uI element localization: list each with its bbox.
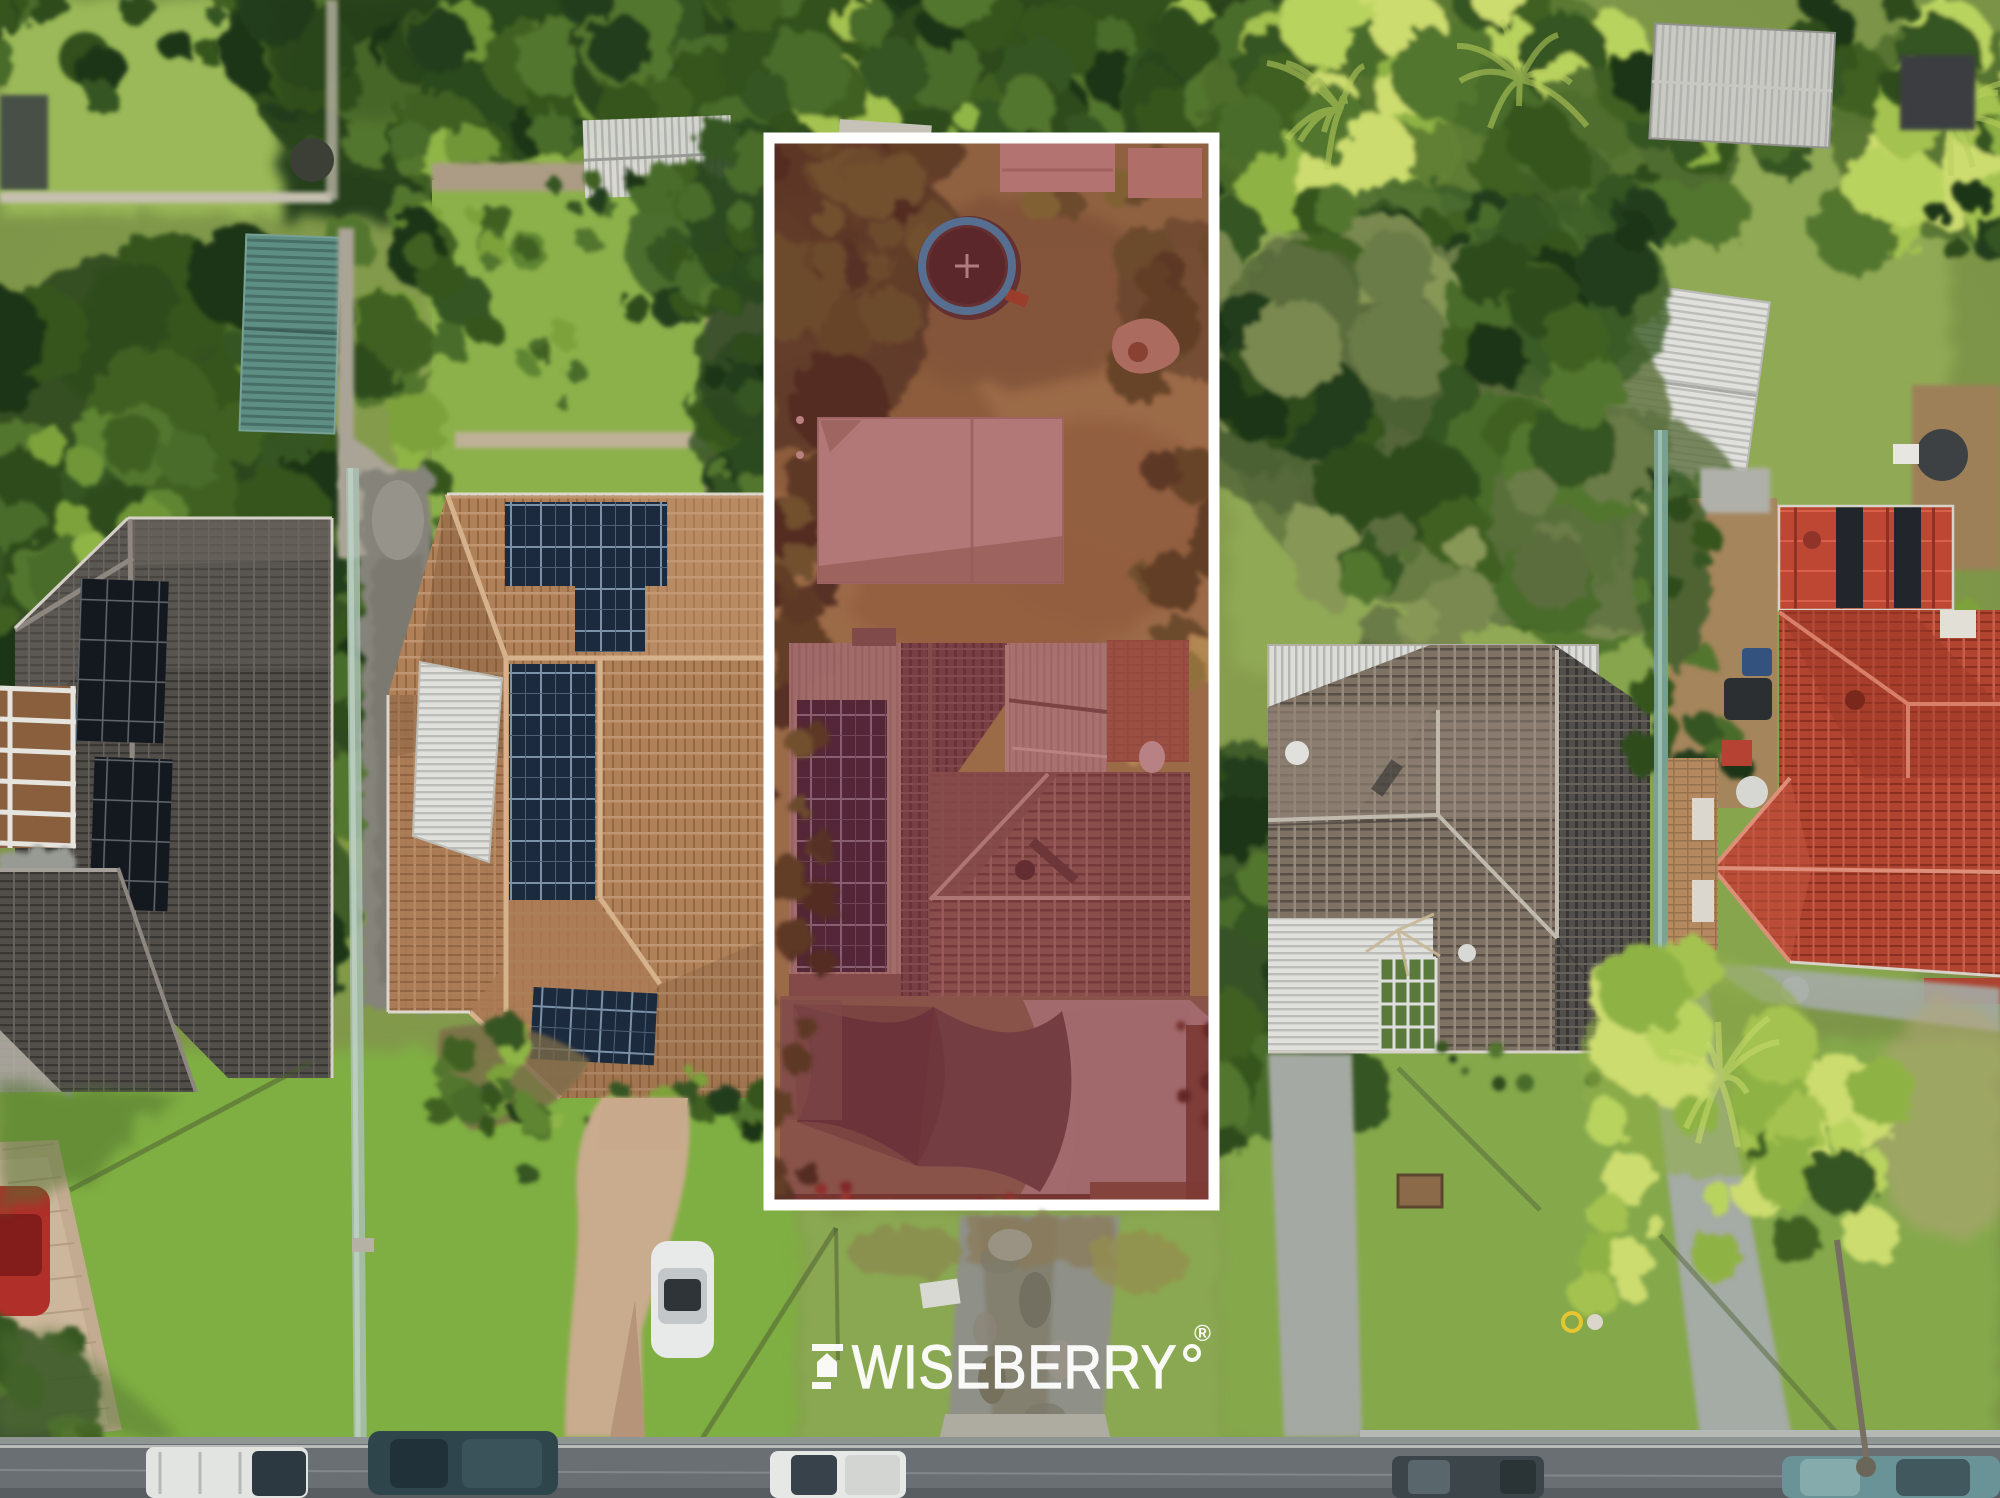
svg-text:®: ®: [1194, 1320, 1211, 1346]
svg-text:WISEBERRY: WISEBERRY: [852, 1334, 1177, 1402]
